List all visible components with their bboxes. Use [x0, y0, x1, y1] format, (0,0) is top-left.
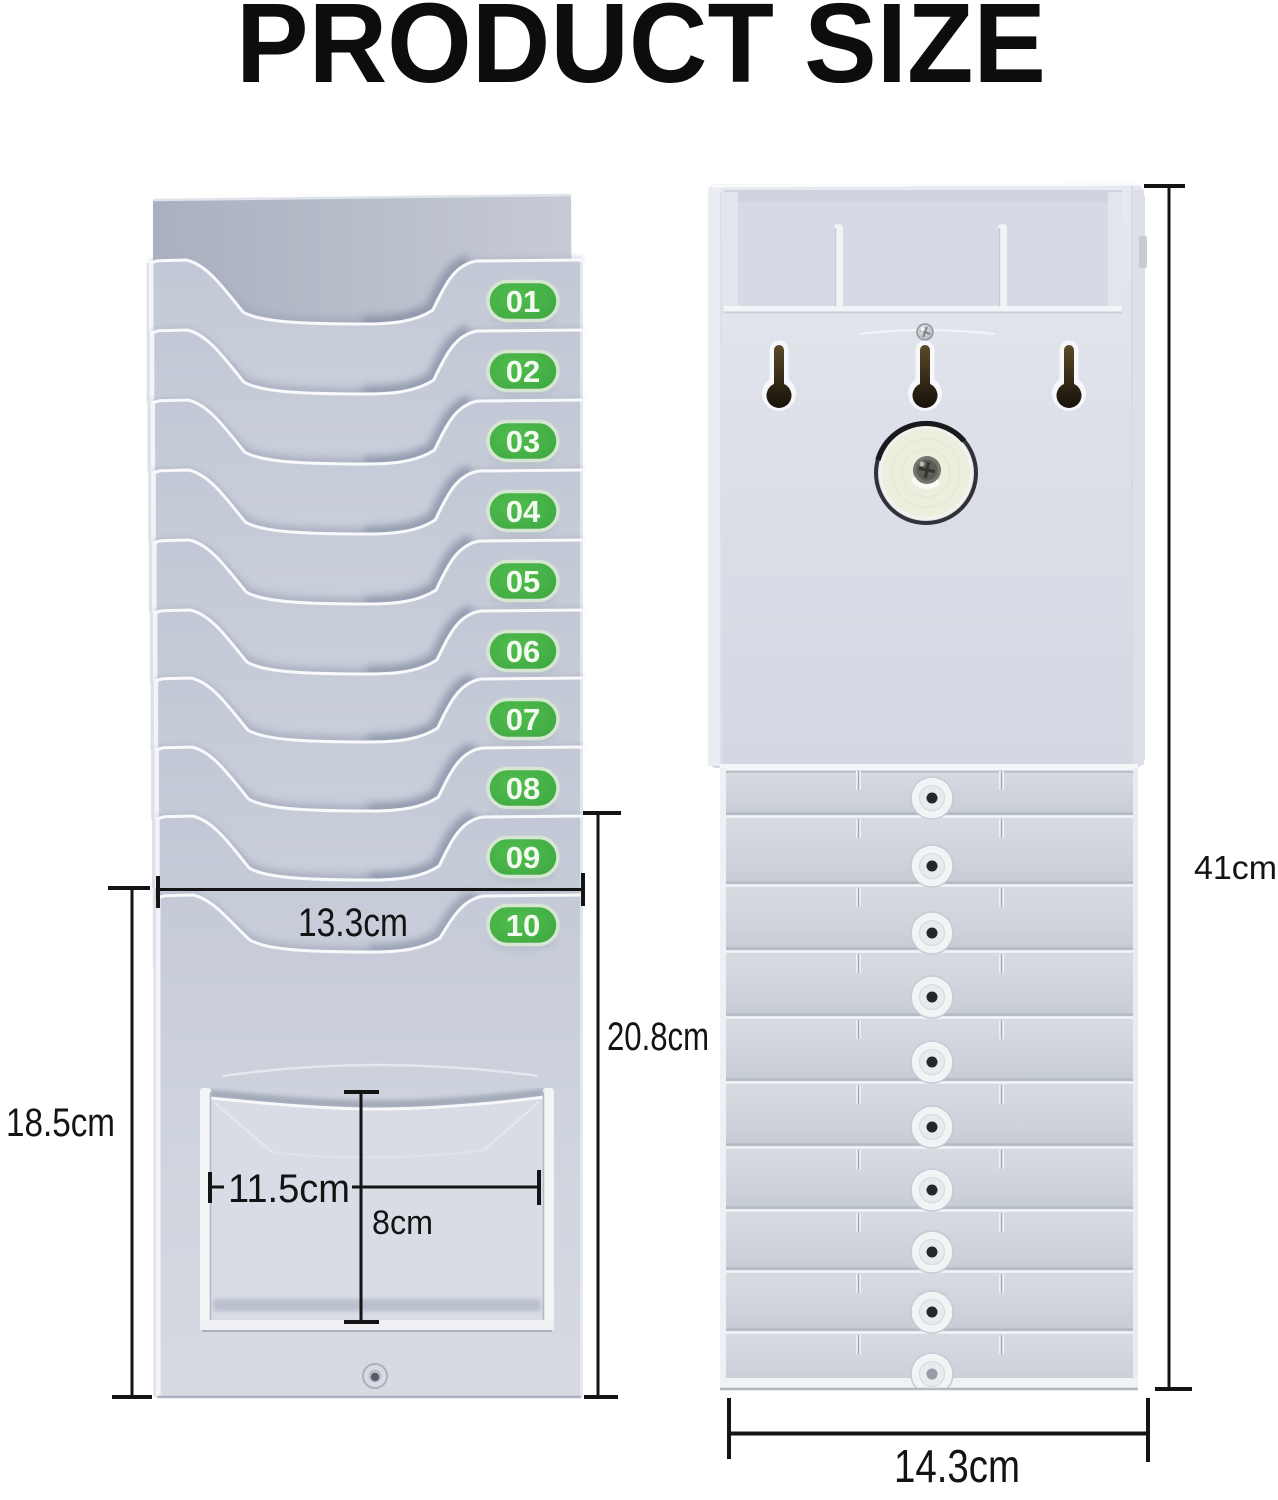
svg-text:03: 03: [506, 424, 540, 459]
svg-text:06: 06: [506, 634, 540, 669]
svg-text:20.8cm: 20.8cm: [607, 1015, 709, 1059]
svg-text:41cm: 41cm: [1194, 849, 1277, 886]
svg-text:01: 01: [506, 284, 540, 319]
svg-text:07: 07: [506, 702, 540, 737]
svg-text:08: 08: [506, 771, 540, 806]
svg-text:PRODUCT SIZE: PRODUCT SIZE: [236, 0, 1046, 106]
svg-text:04: 04: [506, 494, 541, 529]
svg-text:11.5cm: 11.5cm: [228, 1167, 350, 1211]
svg-text:05: 05: [506, 564, 540, 599]
svg-text:09: 09: [506, 840, 540, 875]
svg-text:18.5cm: 18.5cm: [6, 1101, 115, 1145]
svg-text:8cm: 8cm: [372, 1204, 433, 1242]
svg-text:14.3cm: 14.3cm: [894, 1440, 1020, 1492]
svg-text:02: 02: [506, 354, 540, 389]
svg-text:10: 10: [506, 908, 540, 943]
svg-text:13.3cm: 13.3cm: [298, 901, 408, 945]
